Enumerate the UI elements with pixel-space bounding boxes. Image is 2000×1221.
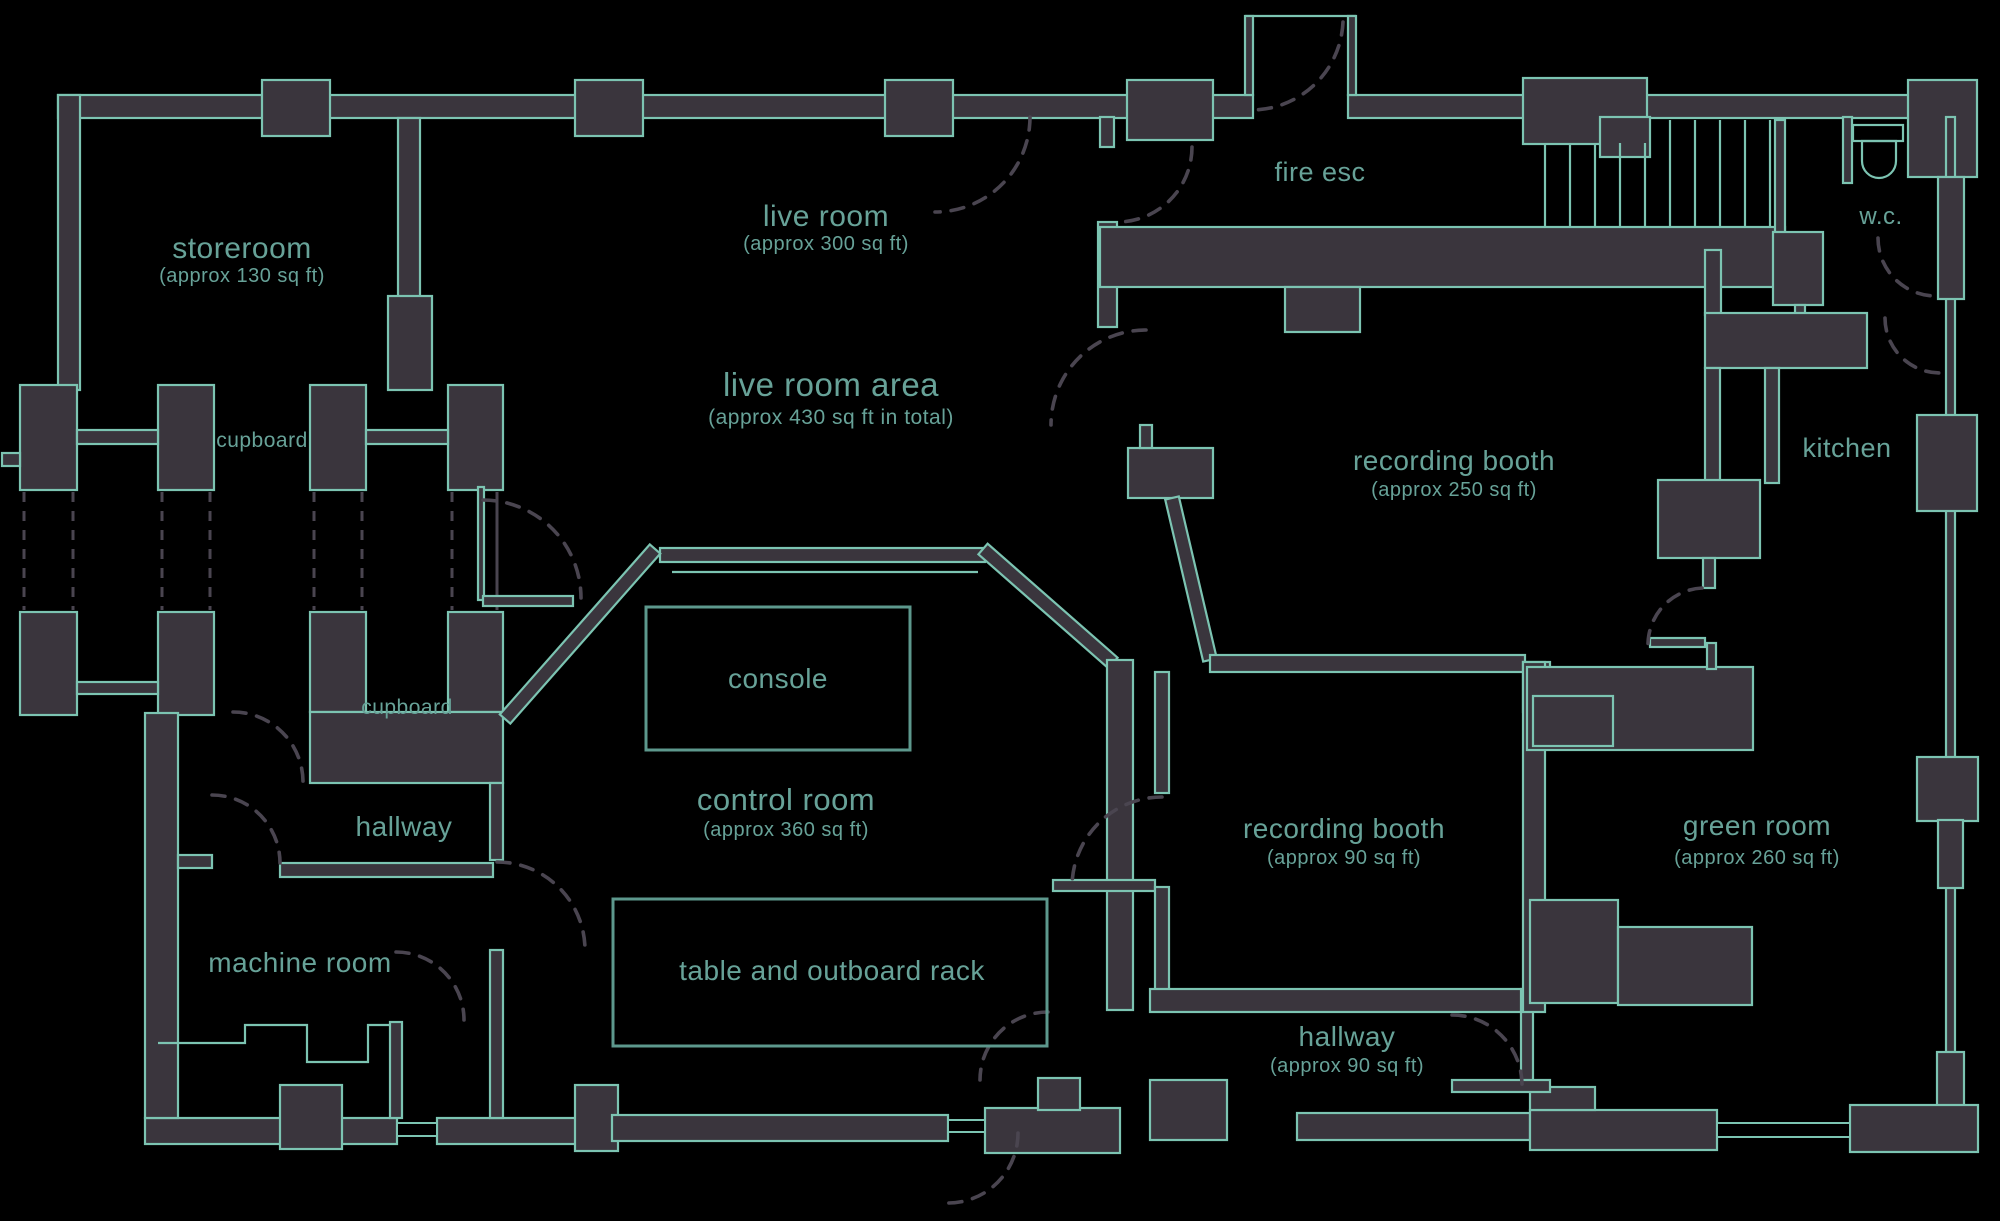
control-to-hall-door-arc xyxy=(497,862,585,950)
floor-plan-svg: storeroom (approx 130 sq ft) live room (… xyxy=(0,0,2000,1221)
room-label-machine-room: machine room xyxy=(208,947,391,978)
bay-dashed-lines xyxy=(24,492,452,610)
room-label-control-room: control room xyxy=(697,782,875,817)
room-size-live-room-area: (approx 430 sq ft in total) xyxy=(708,406,954,429)
room-size-hallway-lower: (approx 90 sq ft) xyxy=(1270,1055,1424,1077)
room-size-control-room: (approx 360 sq ft) xyxy=(703,819,869,841)
room-label-fire-esc: fire esc xyxy=(1274,157,1365,187)
room-label-cupboard-upper: cupboard xyxy=(216,429,308,452)
room-label-cupboard-lower: cupboard xyxy=(361,696,453,719)
room-size-storeroom: (approx 130 sq ft) xyxy=(159,265,325,287)
green-room-door-arc xyxy=(1648,588,1702,645)
fire-esc-walls xyxy=(1098,117,1785,332)
booth-large-door-arc xyxy=(1051,330,1146,425)
recording-booth-walls xyxy=(1128,425,1550,1092)
toilet-icon xyxy=(1853,125,1903,178)
wc-door-arc xyxy=(1878,238,1936,296)
room-label-live-room-area: live room area xyxy=(723,366,939,403)
room-label-recording-booth-large: recording booth xyxy=(1353,445,1555,476)
room-label-recording-booth-small: recording booth xyxy=(1243,813,1445,844)
fire-escape-exit-door-arc xyxy=(1251,22,1343,110)
wc-walls xyxy=(1843,117,1903,183)
room-label-hallway-upper: hallway xyxy=(356,811,453,842)
room-label-live-room: live room xyxy=(763,200,889,233)
room-size-live-room: (approx 300 sq ft) xyxy=(743,233,909,255)
machine-room-door-arc xyxy=(212,795,280,863)
storeroom-walls xyxy=(388,118,432,390)
room-size-recording-booth-small: (approx 90 sq ft) xyxy=(1267,847,1421,869)
corridor-door-arc xyxy=(233,712,303,782)
room-label-kitchen: kitchen xyxy=(1802,433,1891,463)
furniture-label-console: console xyxy=(728,663,828,694)
kitchen-door-arc xyxy=(1885,318,1940,373)
machine-room-closet-door-arc xyxy=(396,952,464,1020)
room-label-green-room: green room xyxy=(1683,810,1831,841)
room-label-hallway-lower: hallway xyxy=(1299,1021,1396,1052)
floor-plan: storeroom (approx 130 sq ft) live room (… xyxy=(0,0,2000,1221)
stairs-icon xyxy=(1545,120,1823,327)
room-size-green-room: (approx 260 sq ft) xyxy=(1674,847,1840,869)
room-size-recording-booth-large: (approx 250 sq ft) xyxy=(1371,479,1537,501)
hallway-right-door-arc xyxy=(1452,1015,1522,1085)
fire-esc-door-arc xyxy=(1117,147,1192,222)
room-label-storeroom: storeroom xyxy=(172,232,312,265)
room-label-wc: w.c. xyxy=(1858,203,1902,230)
furniture-label-table-rack: table and outboard rack xyxy=(679,955,985,986)
